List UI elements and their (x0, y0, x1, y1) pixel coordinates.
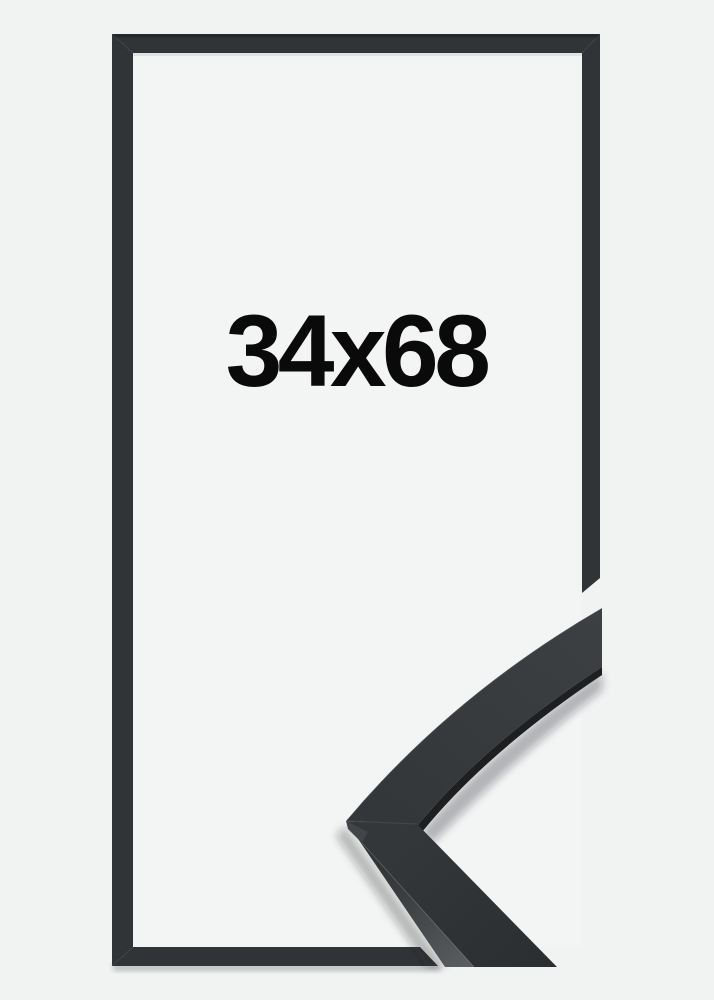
frame-inner-shadow (133, 53, 582, 56)
frame-left-bar (112, 34, 133, 966)
frame-illustration (0, 0, 714, 1000)
frame-bottom-bar-cut (112, 947, 438, 966)
product-image: 34x68 (0, 0, 714, 1000)
frame-top-edge-shade (112, 34, 600, 38)
frame-size-label: 34x68 (112, 300, 600, 402)
